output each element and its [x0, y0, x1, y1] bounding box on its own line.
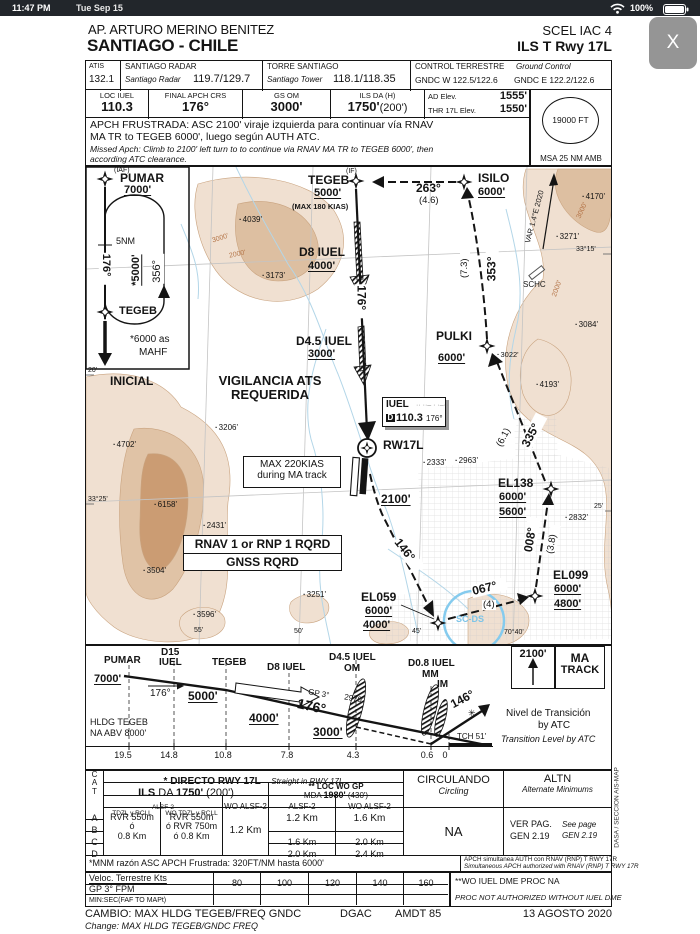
hold-outbound-course: 356°: [152, 254, 164, 284]
el099-alt2: 4800': [554, 599, 581, 611]
el059-alt2: 4000': [363, 620, 390, 632]
fix-rw17l: RW17L: [383, 439, 423, 452]
final-approach-course: 176°: [355, 284, 368, 318]
iuel-morse: ·· ··– · ·–··: [416, 402, 448, 409]
status-date: Tue Sep 15: [76, 3, 123, 13]
course-isilo-tegeb: 263°: [416, 182, 441, 195]
vigilancia-note: VIGILANCIA ATS REQUERIDA: [206, 374, 334, 401]
profile-alt-5000: 5000': [188, 690, 218, 703]
radar-freq: 119.7/129.7: [193, 74, 250, 86]
atis-freq: 132.1: [89, 75, 114, 86]
row-label-d: D: [86, 844, 104, 856]
spot-3271: 3271': [556, 233, 579, 241]
cat-letter-t: T: [86, 788, 103, 796]
fix-el099: EL099: [553, 569, 588, 582]
dist-10-8: 10.8: [208, 751, 238, 760]
dme-required-note-box: **WO IUEL DME PROC NA PROC NOT AUTHORIZE…: [450, 872, 612, 907]
profile-fix-tegeb: TEGEB: [212, 658, 246, 669]
spot-4702: 4702': [113, 441, 136, 449]
loc-alsf2-minima-d: 2.0 Km: [269, 844, 336, 856]
ground-label-en: Ground Control: [516, 63, 571, 71]
profile-alt-3000: 3000': [313, 726, 343, 739]
ma-speed-line2: during MA track: [244, 471, 340, 482]
battery-icon: [663, 4, 689, 15]
minsec-160: [404, 895, 448, 905]
fpm-140: [357, 885, 404, 895]
status-time: 11:47 PM: [12, 3, 51, 13]
loc-freq: 110.3: [86, 100, 148, 114]
spot-3504: 3504': [143, 567, 166, 575]
amendment: AMDT 85: [395, 909, 441, 921]
fix-el059: EL059: [361, 591, 396, 604]
profile-fix-d8: D8 IUEL: [267, 663, 305, 674]
minima-note-right: APCH simultanea AUTH con RNAV (RNP) T RW…: [461, 856, 611, 871]
lon-45: 45': [412, 628, 421, 635]
ma-box-altitude: 2100': [512, 649, 554, 661]
profile-tch: TCH 51': [457, 733, 486, 741]
course-pulki-isilo: 353°: [486, 248, 499, 282]
rnav-req-box: RNAV 1 or RNP 1 RQRD GNSS RQRD: [183, 535, 342, 571]
profile-alt-7000: 7000': [94, 674, 121, 686]
ils-minima-header: ILS DA 1750' (200'): [104, 783, 269, 796]
loc-alsf2-minima-ab: 1.2 Km: [269, 808, 336, 832]
msa-label: MSA 25 NM AMB: [531, 155, 611, 163]
hold-restriction-line2: NA ABV 8000': [90, 729, 146, 738]
spot-2832: 2832': [565, 514, 588, 522]
profile-alt-4000: 4000': [249, 712, 279, 725]
hold-inbound-course: 176°: [99, 253, 111, 285]
speed-row3-label: MIN:SEC(FAF TO MAPt): [86, 895, 214, 905]
el059-alt1: 6000': [365, 606, 392, 618]
profile-marker-om: OM: [344, 664, 360, 675]
mahf-note1: *6000 as: [130, 335, 169, 346]
vigilancia-line1: VIGILANCIA ATS: [206, 374, 334, 388]
hold-restriction-line1: HLDG TEGEB: [90, 718, 148, 727]
airport-name: AP. ARTURO MERINO BENITEZ: [88, 23, 274, 37]
fpm-160: [404, 885, 448, 895]
alternate-minima: VER PAG. GEN 2.19 See page GEN 2.19: [504, 808, 611, 856]
lat-33-25: 33°25': [88, 496, 108, 503]
profile-fix-d45: D4.5 IUEL: [329, 653, 376, 664]
spot-3173: 3173': [262, 272, 285, 280]
spot-2333: 2333': [423, 459, 446, 467]
dist-14-8: 14.8: [154, 751, 184, 760]
spot-3596: 3596': [193, 611, 216, 619]
ma-track-line2: TRACK: [556, 665, 604, 677]
radar-label: SANTIAGO RADAR: [125, 63, 197, 71]
thr-elev-label: THR 17L Elev.: [428, 107, 476, 115]
speed-160: 160: [404, 873, 448, 885]
el138-alt1: 6000': [499, 492, 526, 504]
el099-alt1: 6000': [554, 584, 581, 596]
fix-tegeb: TEGEB: [308, 174, 349, 187]
tick-25: 25': [594, 503, 603, 510]
minsec-120: [309, 895, 357, 905]
loc-wo-alsf2-header: WO ALSF-2: [336, 796, 404, 808]
ils-wo-alsf2-minima: 1.2 Km: [223, 808, 269, 856]
altn-gen-219: GEN 2.19: [510, 832, 550, 841]
dme-icon: D: [386, 414, 395, 422]
rnav-req-line2: GNSS RQRD: [184, 553, 341, 571]
speed-140: 140: [357, 873, 404, 885]
tick-20: 20': [88, 367, 97, 374]
minsec-140: [357, 895, 404, 905]
tower-freq: 118.1/118.35: [333, 74, 396, 86]
authority: DGAC: [340, 909, 372, 921]
tower-label: TORRE SANTIAGO: [267, 63, 338, 71]
spot-3084: 3084': [575, 321, 598, 329]
iuel-name: IUEL: [386, 400, 409, 411]
missed-line4: according ATC clearance.: [90, 155, 187, 164]
spot-4170: 4170': [582, 193, 605, 201]
cat-header: C A T: [86, 771, 104, 808]
iuel-facility-box: IUEL ·· ··– · ·–·· D 110.3 176°: [382, 397, 446, 427]
row-label-a: A: [86, 808, 104, 820]
thr-elev: 1550': [500, 104, 527, 116]
ma-altitude-box: 2100': [511, 646, 555, 689]
da-height: (200'): [380, 102, 408, 114]
spot-3206: 3206': [215, 424, 238, 432]
effective-date: 13 AGOSTO 2020: [492, 909, 612, 921]
spot-2431: 2431': [203, 522, 226, 530]
mapt-symbol: ✳: [468, 709, 476, 718]
atis-label: ATIS: [89, 63, 104, 70]
chart-viewer-page: 11:47 PM Tue Sep 15 100% X AP. ARTURO ME…: [0, 0, 700, 934]
vigilancia-line2: REQUERIDA: [206, 388, 334, 402]
rnav-req-line1: RNAV 1 or RNP 1 RQRD: [184, 536, 341, 553]
row-label-c: C: [86, 832, 104, 844]
hold-leg-length: 5NM: [116, 237, 135, 246]
circling-header: CIRCULANDO Circling: [404, 771, 504, 808]
schc-airport-label: SCHC: [523, 281, 546, 289]
mahf-note2: MAHF: [139, 348, 167, 359]
iuel-freq: 110.3: [396, 413, 423, 425]
hold-altitude: *5000': [131, 251, 143, 287]
dist-pulki-isilo: (7.3): [460, 249, 470, 279]
change-note-en: Change: MAX HLDG TEGEB/GNDC FREQ: [85, 922, 258, 931]
msa-box: 19000 FT MSA 25 NM AMB: [530, 89, 612, 166]
transition-level-line2: by ATC: [538, 721, 570, 732]
spot-4193: 4193': [536, 381, 559, 389]
ground-freq-east: GNDC E 122.2/122.6: [514, 76, 594, 85]
loc-minima-header: ** LOC WO GP MDA 1980' (430'): [269, 783, 404, 796]
missed-line3: Missed Apch: Climb to 2100' left turn to…: [90, 145, 433, 154]
radar-name: Santiago Radar: [125, 76, 181, 84]
profile-course-small: 176°: [150, 689, 171, 700]
close-button[interactable]: X: [649, 17, 697, 69]
missed-line2: MA TR to TEGEB 6000', luego según AUTH A…: [90, 132, 320, 143]
speed-table: Veloc. Terrestre Kts 80 100 120 140 160 …: [85, 872, 450, 907]
procedure-data-row: LOC IUEL 110.3 FINAL APCH CRS 176° GS OM…: [85, 89, 530, 118]
fix-d45-iuel: D4.5 IUEL: [296, 335, 352, 348]
scds-airspace-label: SC-DS: [456, 615, 484, 624]
procedure-title: ILS T Rwy 17L: [492, 39, 612, 54]
ma-speed-line1: MAX 220KIAS: [244, 460, 340, 471]
fpm-80: [214, 885, 261, 895]
fix-pulki: PULKI: [436, 330, 472, 343]
ma-speed-box: MAX 220KIAS during MA track: [243, 456, 341, 488]
fix-d8-iuel: D8 IUEL: [299, 246, 345, 259]
page-title: SANTIAGO - CHILE: [87, 37, 238, 55]
pumar-altitude: 7000': [124, 185, 151, 197]
fix-isilo: ISILO: [478, 172, 509, 185]
tegeb-altitude: 5000': [314, 188, 341, 200]
speed-row2-label: GP 3° FPM: [86, 885, 214, 895]
transition-level-line1: Nivel de Transición: [506, 709, 590, 720]
speed-80: 80: [214, 873, 261, 885]
alternate-header: ALTN Alternate Minimums: [504, 771, 611, 808]
profile-view: PUMAR D15 IUEL TEGEB D8 IUEL D4.5 IUEL O…: [85, 645, 612, 770]
spot-3022: 3022': [497, 351, 519, 359]
altn-see-page: See page: [562, 821, 596, 829]
el138-alt2: 5600': [499, 507, 526, 519]
dist-4-3: 4.3: [338, 751, 368, 760]
altn-gen-219-en: GEN 2.19: [562, 832, 597, 840]
missed-approach-box: APCH FRUSTRADA: ASC 2100' viraje izquier…: [85, 117, 530, 166]
loc-wo-alsf2-minima-c: 2.0 Km: [336, 832, 404, 844]
speed-100: 100: [261, 873, 309, 885]
ma-track-box: MA TRACK: [555, 646, 605, 689]
comms-row: ATIS 132.1 SANTIAGO RADAR Santiago Radar…: [85, 60, 612, 90]
profile-fix-d15b: IUEL: [159, 658, 182, 669]
transition-level-line3: Transition Level by ATC: [501, 735, 595, 744]
profile-marker-im: IM: [437, 680, 448, 691]
dist-el059-el099: (4): [482, 600, 496, 610]
iuel-course: 176°: [426, 415, 443, 423]
ma-altitude: 2100': [380, 493, 412, 506]
loc-alsf2-minima-c: 1.6 Km: [269, 832, 336, 844]
lon-50: 50': [294, 628, 303, 635]
loc-wo-alsf2-minima-d: 2.4 Km: [336, 844, 404, 856]
battery-percent: 100%: [630, 3, 653, 13]
altn-ver-pag: VER PAG.: [510, 820, 552, 829]
ils-tdzl-minima: RVR 550m ó 0.8 Km: [104, 808, 161, 856]
ma-track-line1: MA: [556, 652, 604, 665]
lat-33-15: 33°15': [576, 246, 596, 253]
minsec-100: [261, 895, 309, 905]
missed-line1: APCH FRUSTRADA: ASC 2100' viraje izquier…: [90, 120, 433, 131]
isilo-altitude: 6000': [478, 187, 505, 199]
dme-note-line2: PROC NOT AUTHORIZED WITHOUT IUEL DME: [455, 894, 622, 902]
dist-0: 0: [438, 751, 452, 760]
close-icon: X: [667, 32, 680, 54]
d8-altitude: 4000': [308, 261, 335, 273]
lon-55: 55': [194, 627, 203, 634]
ad-elev-label: AD Elev.: [428, 93, 457, 101]
ils-wo-alsf2-header: WO ALSF-2: [223, 796, 269, 808]
fpm-100: [261, 885, 309, 895]
dme-note-line1: **WO IUEL DME PROC NA: [455, 877, 560, 886]
minsec-80: [214, 895, 261, 905]
wifi-icon: [610, 3, 625, 14]
dist-7-8: 7.8: [272, 751, 302, 760]
tegeb-speed-limit: (MAX 180 KIAS): [292, 203, 348, 211]
profile-fix-d08: D0.8 IUEL: [408, 659, 455, 670]
row-label-b: B: [86, 820, 104, 832]
ground-freq-west: GNDC W 122.5/122.6: [415, 76, 498, 85]
d45-altitude: 3000': [308, 349, 335, 361]
tower-name: Santiago Tower: [267, 76, 322, 84]
minima-note-left: *MNM razón ASC APCH Frustrada: 320FT/NM …: [86, 856, 461, 871]
chart-code: SCEL IAC 4: [492, 24, 612, 38]
ils-wo-tdzl-minima: RVR 550m ó RVR 750m ó 0.8 Km: [161, 808, 223, 856]
loc-wo-alsf2-minima-ab: 1.6 Km: [336, 808, 404, 832]
ground-label: CONTROL TERRESTRE: [415, 63, 504, 71]
fix-tegeb-hold: TEGEB: [119, 306, 157, 318]
dist-19-5: 19.5: [108, 751, 138, 760]
spot-2963: 2963': [455, 457, 478, 465]
spot-4039: 4039': [239, 216, 262, 224]
spot-6158: 6158': [154, 501, 177, 509]
da-value: 1750': [348, 99, 380, 114]
ad-elev: 1555': [500, 91, 527, 103]
change-note-es: CAMBIO: MAX HLDG TEGEB/FREQ GNDC: [85, 909, 301, 921]
final-crs: 176°: [149, 100, 242, 114]
segment-inicial: INICIAL: [110, 375, 153, 388]
speed-120: 120: [309, 873, 357, 885]
spot-3251: 3251': [303, 591, 326, 599]
fix-el138: EL138: [498, 477, 533, 490]
lon-70-40: 70°40': [504, 629, 524, 636]
plan-view: (IAF) PUMAR 7000' 5NM *5000' 356° 176° T…: [85, 166, 612, 645]
msa-altitude: 19000 FT: [552, 116, 588, 125]
fix-pumar: PUMAR: [120, 172, 164, 185]
loc-alsf2-header: ALSF-2: [269, 796, 336, 808]
profile-fix-pumar: PUMAR: [104, 656, 141, 667]
circling-minima: NA: [404, 808, 504, 856]
margin-publisher-text: DASA / SECCION AIS-MAP: [615, 747, 622, 867]
pulki-altitude: 6000': [438, 353, 465, 365]
gs-alt: 3000': [243, 100, 330, 114]
fpm-120: [309, 885, 357, 895]
minimums-table: C A T A B C D * DIRECTO RWY 17L Straight…: [85, 770, 612, 872]
dist-isilo-tegeb: (4.6): [419, 196, 439, 206]
status-bar: 11:47 PM Tue Sep 15 100%: [0, 0, 700, 16]
